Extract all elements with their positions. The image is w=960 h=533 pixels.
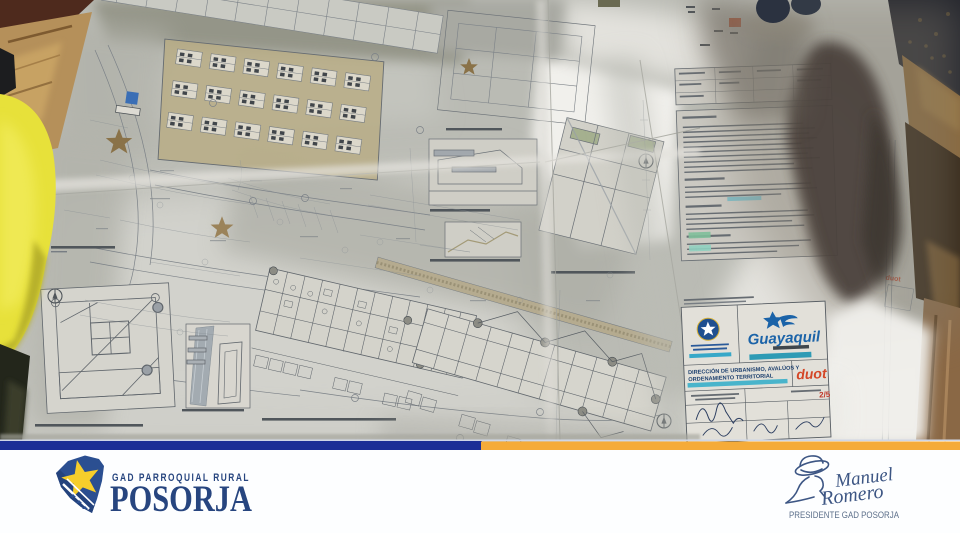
- svg-text:Guayaquil: Guayaquil: [747, 328, 821, 348]
- svg-text:PRESIDENTE GAD POSORJA: PRESIDENTE GAD POSORJA: [789, 510, 900, 521]
- svg-text:2/5: 2/5: [819, 390, 831, 400]
- svg-text:duot: duot: [796, 365, 828, 382]
- svg-text:POSORJA: POSORJA: [110, 479, 252, 520]
